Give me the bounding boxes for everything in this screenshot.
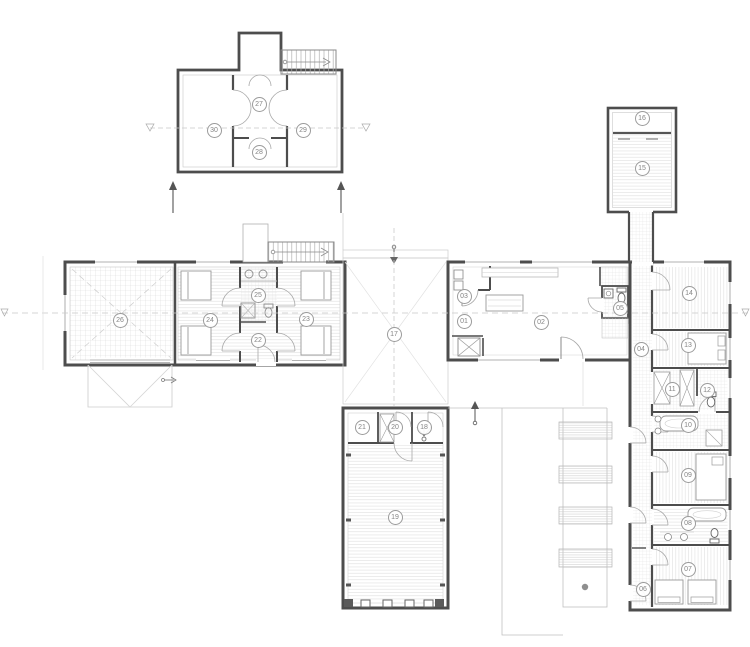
bench-step	[559, 466, 612, 483]
bench-step	[559, 422, 612, 439]
section-marker	[742, 309, 749, 316]
tree-marker	[582, 584, 588, 590]
section-marker	[362, 124, 370, 131]
garage-wing	[63, 224, 346, 407]
central-courtyard	[343, 245, 448, 404]
section-marker	[1, 309, 8, 316]
kitchen-island	[486, 295, 523, 311]
stair-direction-arrows	[173, 188, 341, 213]
hall-19-floor	[348, 445, 443, 601]
section-marker	[146, 124, 154, 131]
garage-apron	[88, 365, 172, 407]
sauna-block	[608, 108, 676, 262]
entry-arrow-up	[471, 401, 479, 409]
hall-building	[343, 408, 448, 608]
floor-plan-drawing	[0, 0, 750, 647]
bedroom-wing	[628, 260, 733, 611]
floor-plan-canvas: 0102030405060708091011121314151617181920…	[0, 0, 750, 647]
patio-terrace	[448, 401, 612, 635]
main-living-building	[448, 259, 634, 363]
corridor-04-floor	[633, 266, 652, 605]
bench-step	[559, 549, 612, 567]
deck-15-floor	[613, 135, 671, 207]
upper-floor-plan	[169, 33, 345, 213]
bench-step	[559, 507, 612, 524]
entry-stair	[243, 224, 334, 262]
link-corridor	[630, 212, 652, 262]
